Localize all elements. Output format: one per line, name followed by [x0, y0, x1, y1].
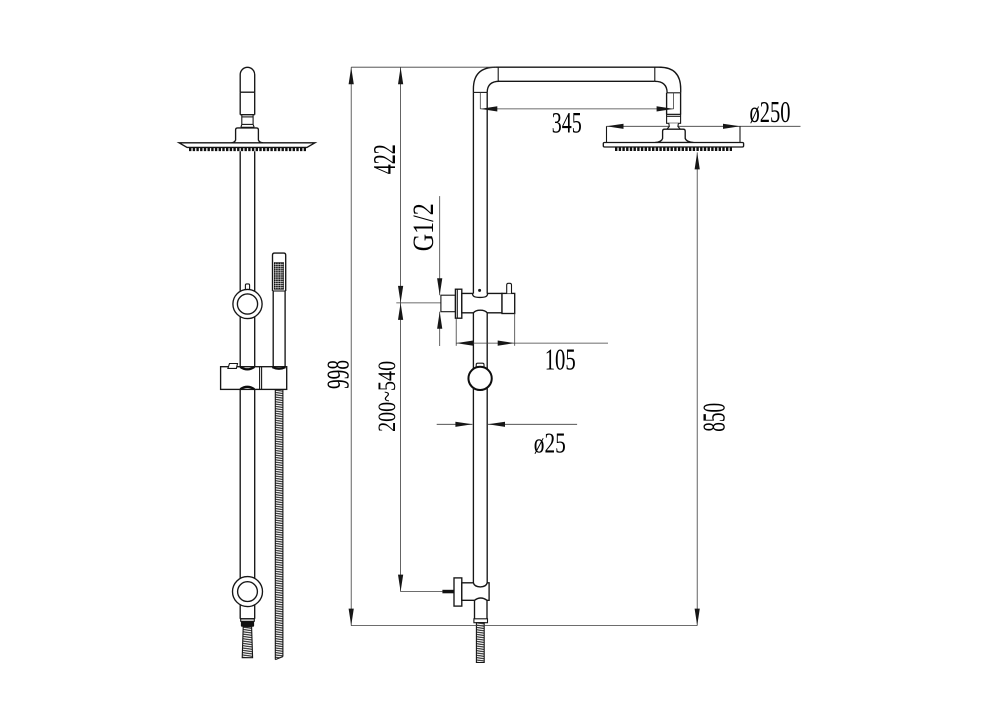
svg-text:200~540: 200~540: [374, 361, 401, 432]
svg-text:ø25: ø25: [534, 427, 566, 459]
svg-text:422: 422: [366, 144, 402, 174]
svg-text:998: 998: [319, 360, 355, 389]
svg-text:G1/2: G1/2: [407, 203, 440, 251]
svg-text:850: 850: [695, 403, 731, 432]
svg-text:345: 345: [552, 106, 582, 139]
svg-text:105: 105: [545, 341, 576, 376]
svg-text:ø250: ø250: [750, 94, 791, 129]
